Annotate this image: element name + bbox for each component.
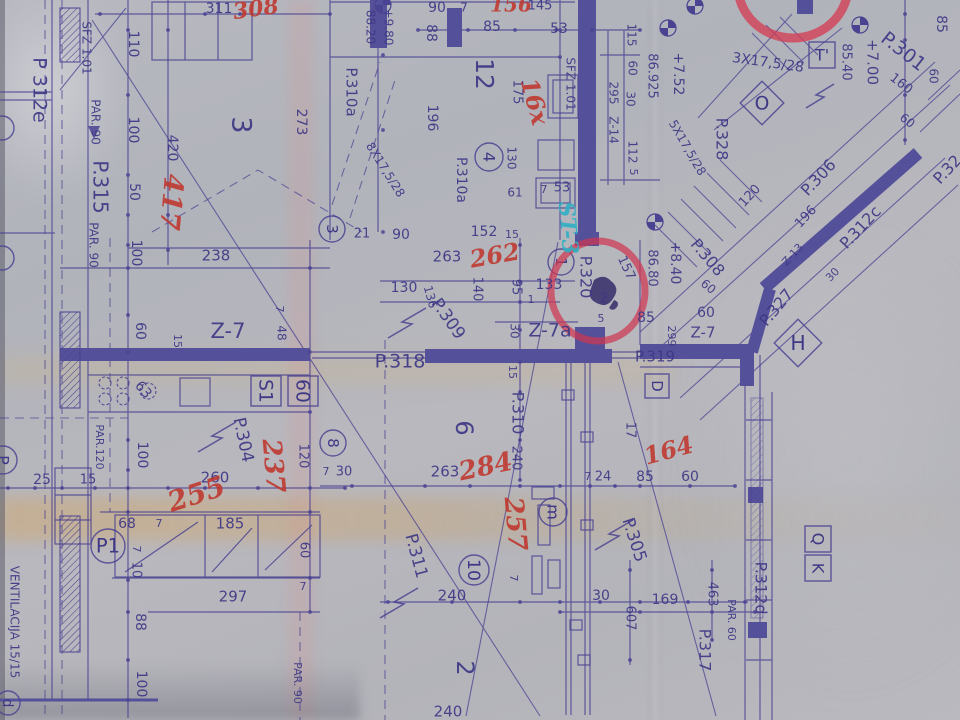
parapet-label: PAR.120 [93,424,106,469]
diamond-mark-H: H [774,319,822,367]
dimension-text: 7 [156,517,163,530]
dimension-text: 100 [128,240,144,267]
dimension-text: 299 [665,326,678,347]
dimension-text: 152 [471,224,498,240]
dimension-text: 88 [423,24,439,42]
circled-mark-3: 3 [319,216,345,242]
dimension-text: 100 [133,671,149,698]
room-number: 2 [451,660,479,675]
door-label: P.304 [228,416,257,465]
dimension-text: 7 [507,575,520,582]
dimension-text: 53 [554,181,571,196]
door-label: P.308 [687,235,729,280]
dimension-text: 238 [202,247,231,265]
lintel-label: Z-14 [607,116,621,144]
circled-mark-4: 4 [475,143,503,171]
door-label: P.311 [400,531,431,580]
dimension-text: 196 [424,105,440,132]
boxed-mark-text: 60 [292,379,313,403]
parapet-label: PAR. 90 [87,222,101,268]
dimension-text: 30 [624,91,638,106]
circled-mark-blank [0,246,14,270]
dimension-text: 88 [132,613,148,631]
boxed-mark-text: Q [809,533,828,546]
dimension-text: 463 [705,582,720,607]
door-label: P.301 [877,27,931,76]
elevation: 85.40 [839,43,854,80]
dimension-text: 88.20 [364,10,378,44]
dimension-text: 2 [600,292,608,307]
site-note-red: 257 [498,495,533,553]
boxed-mark-text: K [809,563,828,574]
dimension-text: 140 [470,277,485,302]
lintel-label: Z-7 [691,324,716,342]
dimension-text: 120 [296,444,311,469]
dimension-text: 297 [219,588,248,606]
circled-mark-text: P [0,455,13,465]
door-label: P.318 [375,351,426,373]
dimension-text: 10 [129,562,144,579]
circled-mark-text: 3 [323,224,341,234]
dimension-text: 30 [823,265,842,284]
door-label: P.317 [696,629,715,672]
dimension-text: 60 [897,110,918,130]
circled-mark-d: d [0,691,20,715]
elevation: 86.80 [645,249,660,286]
boxed-mark-Q: Q [805,526,831,552]
floorplan-drawing: 341810mP1dPT'DS160QKOH 31130890715614585… [0,0,960,720]
benchmark-icon [852,17,868,33]
dimension-text: 30 [592,588,610,604]
dimension-text: 7 [323,465,330,478]
elevation: +8.40 [667,242,683,285]
dimension-text: 100 [134,442,150,469]
benchmark-icon [647,214,663,230]
dimension-text: 60 [698,276,719,297]
lintel-label: Z-7a [528,320,571,342]
door-label: P.312d [752,562,771,615]
dimension-text: 112 [626,141,640,164]
door-label: P.320 [577,256,596,299]
dimension-text: 95 [509,279,524,296]
room-number: 6 [450,420,478,435]
dimension-text: 68 [118,516,136,532]
dimension-text: 133 [536,277,563,293]
site-note-red: 262 [466,236,521,273]
boxed-mark-text: S1 [255,379,276,403]
dimension-text: 5 [627,169,640,176]
dimension-text: 61 [507,186,522,200]
boxed-mark-S1: S1 [251,376,281,406]
dimension-text: 263 [433,248,462,266]
door-label: P.310 [509,392,528,435]
boxed-mark-text: D [648,380,666,391]
circled-mark-text: 10 [463,559,483,581]
dimension-text: 160 [887,70,916,97]
door-label: P 312e [29,57,51,122]
dimension-text: 63 [131,378,155,402]
boxed-mark-text: T' [814,46,829,65]
dimension-text: +9.80 [382,9,396,46]
dimension-text: 85 [933,15,949,33]
circled-mark-blank [0,116,14,140]
dimension-text: 30 [508,323,522,338]
red-arc-top-right [738,0,848,38]
dimension-text: 15 [506,365,519,379]
door-label: P.32 [929,151,960,188]
circled-mark-10: 10 [459,555,489,585]
room-number: 12 [470,58,499,90]
dimension-text: 273 [293,109,309,136]
dimension-text: 7 [300,580,307,593]
boxed-mark-K: K [805,555,831,581]
dimension-text: 15 [80,473,97,488]
dimension-text: 263 [431,463,460,481]
dimension-text: 169 [652,592,679,608]
dimension-text: 60 [297,542,312,559]
site-note-red: 417 [153,173,189,232]
site-note-red: 308 [231,0,280,25]
dimension-text: 24 [595,470,612,485]
dimension-text: 90 [392,227,410,243]
circled-mark-text: d [0,699,15,708]
circled-mark-P: P [0,446,17,474]
dimension-text: 7 [585,470,592,483]
parapet-label: PAR. 90 [89,99,103,145]
dimension-text: 607 [623,606,638,631]
dimension-text: 85 [637,310,655,326]
dimension-text: 53 [550,21,568,37]
site-note-red: 164 [641,430,697,471]
circled-mark-text: 8 [324,438,342,448]
dimension-text: 130 [505,147,519,170]
dimension-text: 185 [216,515,245,533]
dimension-text: 110 [125,31,141,58]
dimension-text: 60 [626,60,640,75]
shaft-label: SFZ 1.01 [80,21,94,74]
dimension-text: 60 [927,68,941,83]
site-note-red: 156 [490,0,532,17]
site-note-red: 237 [256,437,291,495]
dimension-text: 60 [132,322,148,340]
shaft-label: SFZ 1.01 [564,57,578,110]
stair-label: 3X17,5/28 [731,50,805,76]
room-number: 3 [226,116,257,133]
blueprint-photo: 341810mP1dPT'DS160QKOH 31130890715614585… [0,0,960,720]
dimension-text: 50 [126,183,142,201]
dimension-text: 7 [130,546,143,553]
dimension-text: 21 [354,227,371,242]
dimension-text: 100 [125,117,141,144]
boxed-mark-T': T' [809,42,835,68]
diamond-mark-O: O [740,81,784,125]
vent-label: VENTILACIJA 15/15 [8,566,22,678]
dimension-text: 240 [438,587,467,605]
lintel-label: Z-7 [211,319,246,343]
door-label: P.310a [453,157,469,203]
site-note-red: 284 [455,447,515,488]
dimension-text: 5 [598,312,605,325]
door-label: P.306 [797,155,840,199]
dimension-text: 48 [275,325,289,340]
dimension-text: 25 [33,472,51,488]
door-label: P.319 [635,348,675,366]
elevation: +7.52 [670,53,686,96]
boxed-mark-60: 60 [288,376,318,406]
dimension-text: 30 [336,465,353,480]
circled-mark-m: m [539,498,567,526]
door-label: P.305 [617,515,650,564]
door-label: P.310a [343,67,361,116]
stair-label: 8X17,5/28 [363,140,408,200]
circled-mark-text: P1 [96,535,120,558]
door-label: P.315 [89,160,113,213]
dimension-text: 311 [206,1,233,17]
parapet-label: PAR. 90 [291,662,304,704]
diamond-mark-text: O [755,94,770,115]
diamond-mark-text: H [790,331,805,355]
circled-mark-text: m [544,504,563,520]
dimension-text: 60 [681,469,699,485]
dimension-text: 7 [460,1,468,15]
dimension-text: 90 [428,0,446,16]
circled-mark-8: 8 [320,430,346,456]
dimension-text: 1 [528,293,535,306]
dimension-text: 85 [483,19,501,35]
site-note-red: 16x [515,75,556,129]
boxed-mark-D: D [645,374,669,398]
dimension-text: 130 [391,280,418,296]
site-note-teal: ST-3 [553,200,584,255]
dimension-text: 145 [528,0,553,14]
dimension-text: 17 [623,422,638,439]
dimension-text: 420 [164,135,180,162]
stair-label: 5X17,5/28 [666,117,709,178]
parapet-label: PAR. 60 [725,599,738,641]
door-label: P.328 [713,118,732,161]
circled-mark-P1: P1 [91,529,125,563]
dimension-text: 240 [434,703,463,720]
dimension-text: 7 [541,183,548,196]
dimension-text: 115 [625,24,639,47]
benchmark-icon [660,20,676,36]
elevation: 86.925 [645,53,660,99]
circled-mark-text: 4 [480,152,499,162]
benchmark-icon [687,0,703,14]
dimension-text: 15 [171,334,184,348]
dimension-text: 7 [273,306,286,313]
dimension-text: 85 [636,469,654,485]
dimension-text: 295 [607,82,621,105]
dimension-text: 60 [697,305,715,321]
